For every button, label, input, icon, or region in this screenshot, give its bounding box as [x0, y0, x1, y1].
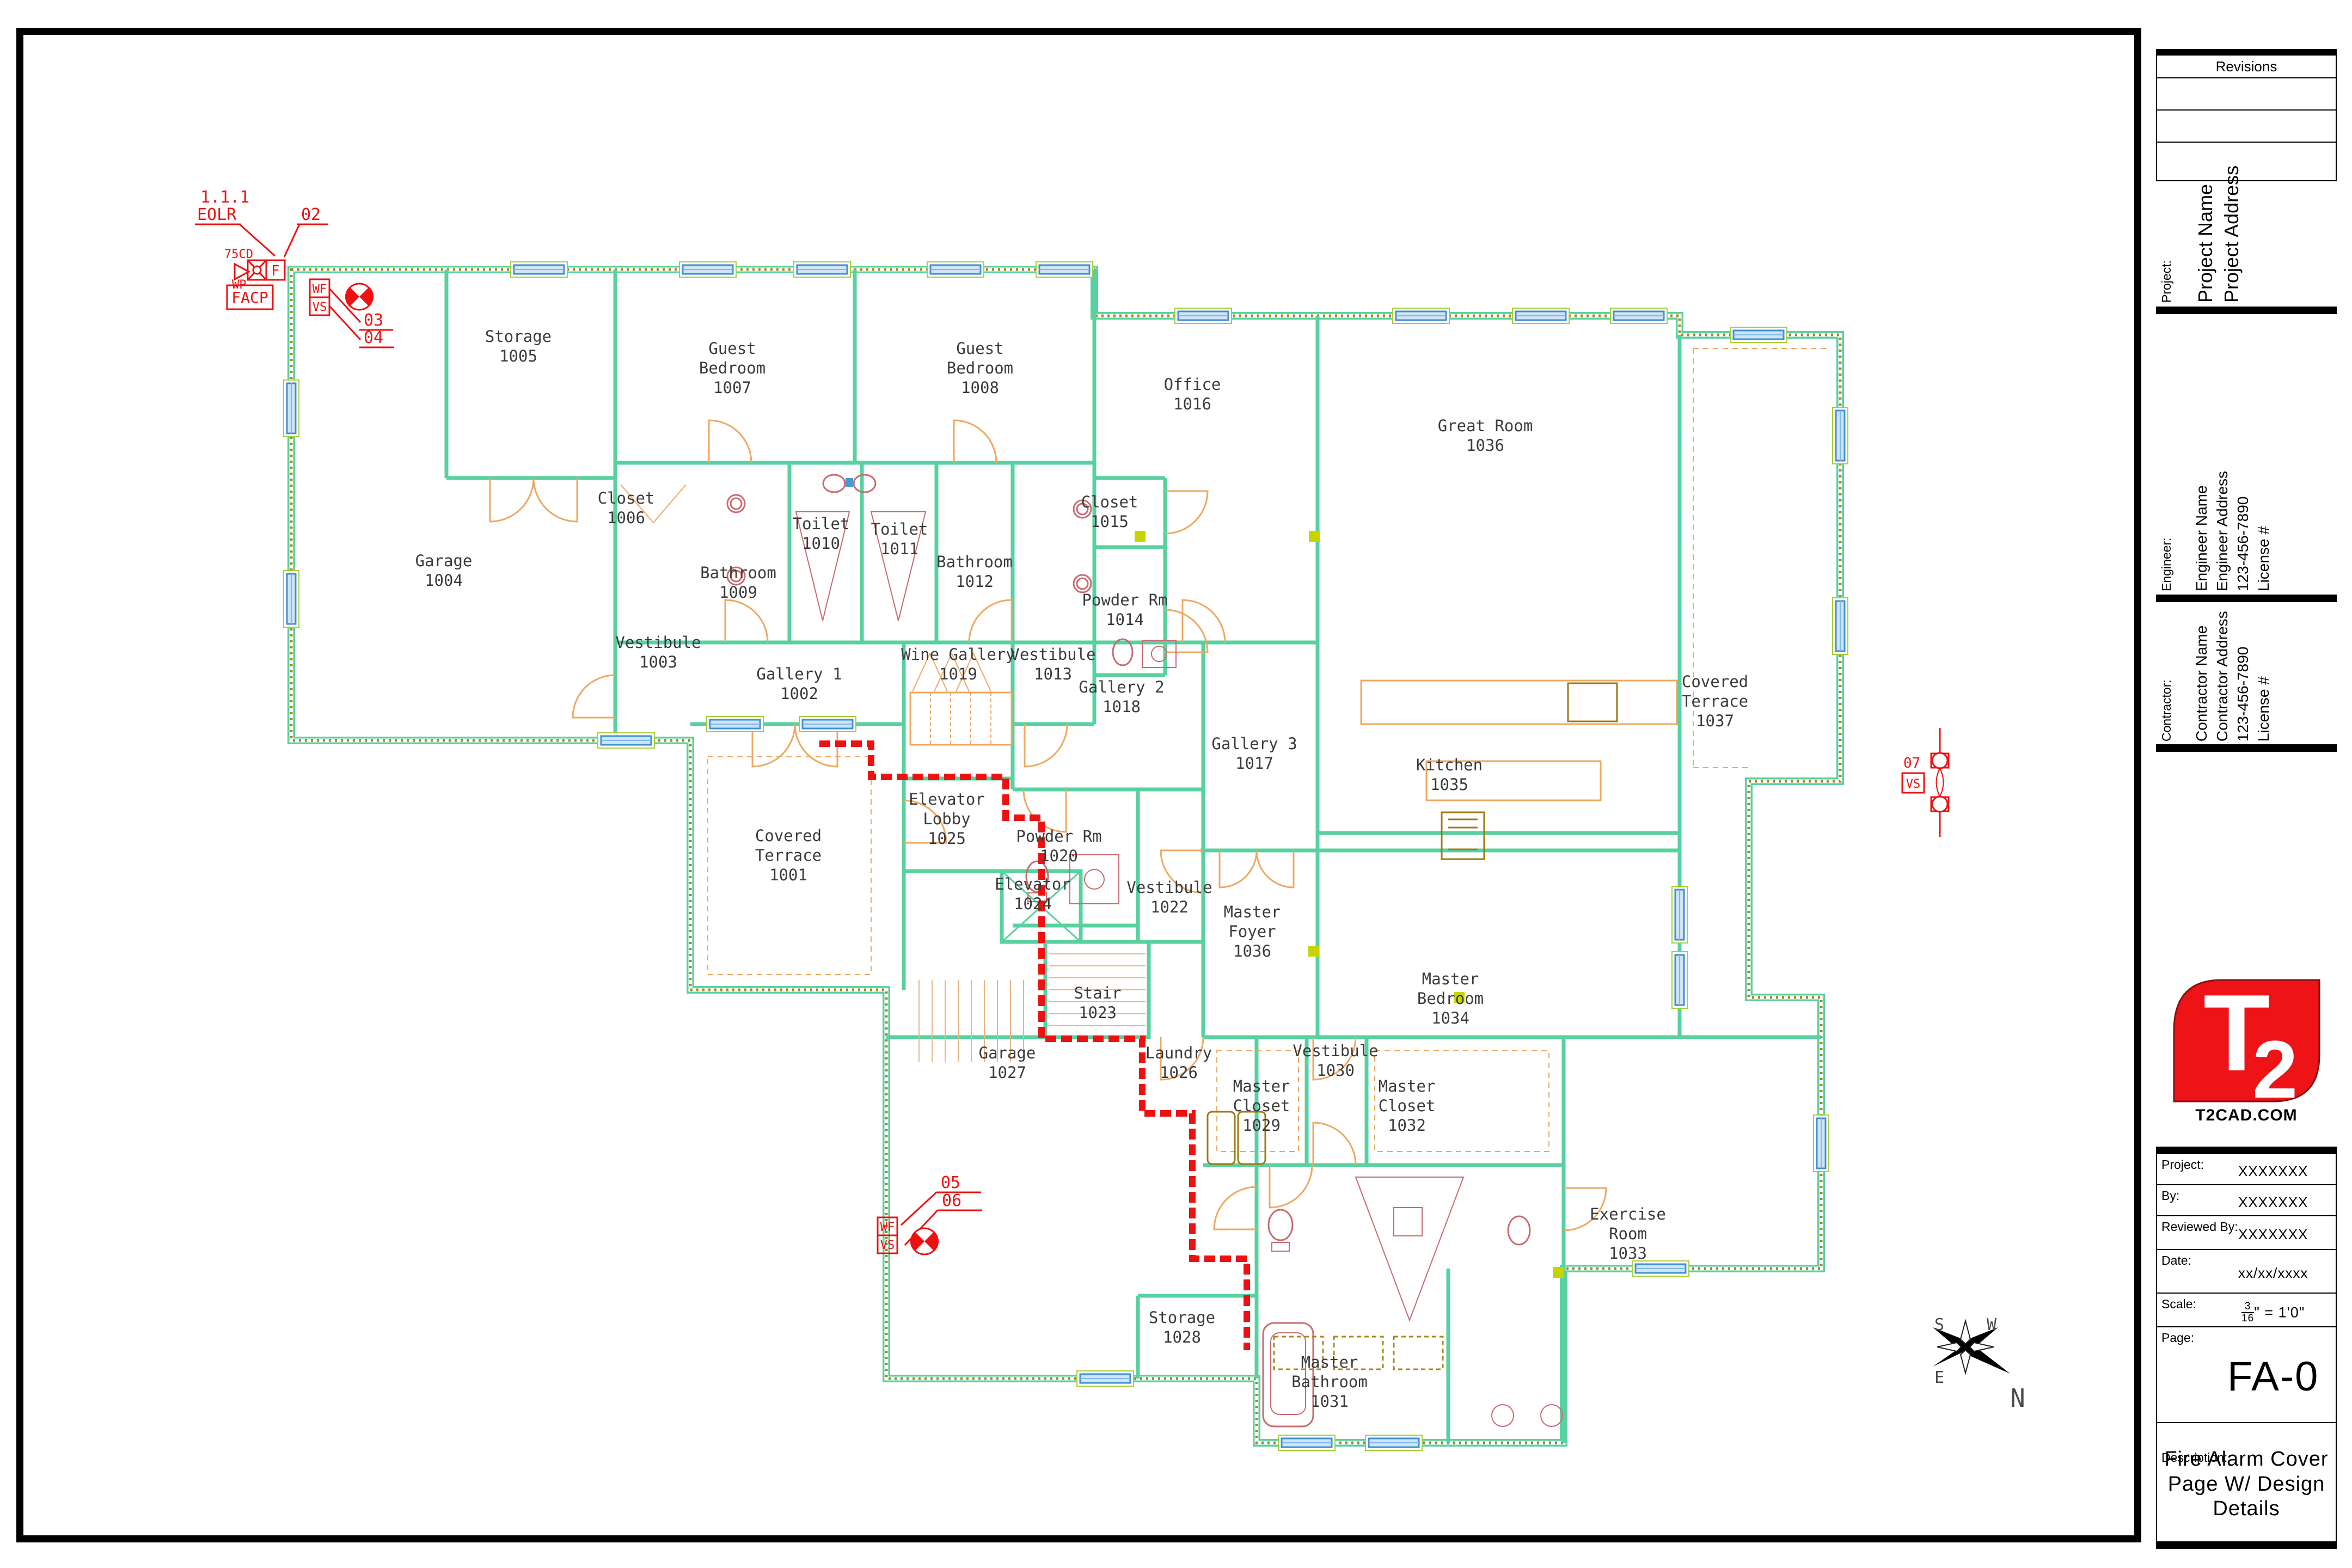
alarm-bell-icon	[910, 1228, 939, 1254]
room-labels: CoveredTerrace1001Gallery 11002Vestibule…	[415, 327, 1748, 1411]
info-value: XXXXXXX	[2210, 1194, 2336, 1211]
info-value: XXXXXXX	[2210, 1163, 2336, 1180]
info-value: xx/xx/xxxx	[2210, 1265, 2336, 1282]
window-icon	[799, 716, 856, 732]
room-label-1006: Closet1006	[598, 489, 655, 527]
pull-station-icon: F	[266, 260, 285, 280]
scale-value: 316" = 1'0"	[2210, 1301, 2336, 1324]
logo-digit-2: 2	[2252, 1024, 2298, 1105]
scale-denominator: 16	[2241, 1312, 2254, 1324]
info-row-page: Page: FA-0	[2157, 1327, 2336, 1423]
room-label-1003: Vestibule1003	[615, 633, 701, 671]
contractor-phone: 123-456-7890	[2234, 647, 2252, 742]
room-label-1029: MasterCloset1029	[1233, 1077, 1290, 1135]
room-label-1004: Garage1004	[415, 552, 473, 590]
info-label: Scale:	[2161, 1297, 2196, 1312]
window-icon	[598, 733, 654, 748]
callout-06: 06	[942, 1191, 961, 1210]
plumbing-chase	[846, 478, 853, 487]
room-label-1024: Elevator1024	[995, 875, 1071, 913]
window-icon	[1512, 308, 1569, 323]
garage-storage-bo	[1274, 1337, 1443, 1369]
info-label: Page:	[2161, 1331, 2194, 1345]
window-icon	[284, 571, 299, 627]
window-icon	[794, 262, 850, 277]
waterflow-switch-box: WF	[310, 279, 329, 297]
window-icon	[1632, 1261, 1689, 1276]
window-icon	[1365, 1435, 1422, 1450]
scale-numerator: 3	[2245, 1301, 2251, 1312]
info-row-date: Date: xx/xx/xxxx	[2157, 1250, 2336, 1294]
callout-05: 05	[941, 1173, 960, 1192]
room-label-1033: ExerciseRoom1033	[1590, 1205, 1666, 1263]
scale-suffix: " = 1'0"	[2254, 1304, 2305, 1321]
window-icon	[511, 262, 567, 277]
window-icon	[1036, 262, 1093, 277]
info-value: XXXXXXX	[2210, 1226, 2336, 1243]
callout-03: 03	[364, 311, 383, 330]
revision-row	[2157, 78, 2336, 111]
compass-n: N	[2010, 1383, 2025, 1413]
contractor-name: Contractor Name	[2193, 626, 2210, 742]
divider	[2156, 307, 2337, 314]
room-label-1012: Bathroom1012	[936, 553, 1013, 591]
project-name: Project Name	[2194, 184, 2217, 303]
room-label-1011: Toilet1011	[871, 520, 928, 558]
engineer-phone: 123-456-7890	[2234, 497, 2252, 591]
room-label-1001: CoveredTerrace1001	[755, 826, 822, 884]
svg-text:WF: WF	[313, 283, 327, 296]
project-address: Project Address	[2220, 166, 2243, 303]
window-icon	[1730, 327, 1787, 342]
contractor-address: Contractor Address	[2214, 611, 2231, 742]
room-label-1037: CoveredTerrace1037	[1682, 672, 1748, 730]
room-label-1034: MasterBedroom1034	[1417, 970, 1484, 1027]
divider	[2156, 744, 2337, 752]
svg-text:FACP: FACP	[231, 289, 268, 307]
svg-text:VS: VS	[313, 301, 327, 314]
circuit-id-label: 1.1.1	[200, 188, 249, 207]
room-label-1008: GuestBedroom1008	[947, 339, 1013, 397]
window-icon	[927, 262, 984, 277]
info-row-by: By: XXXXXXX	[2157, 1185, 2336, 1216]
garage-alarm-cluster: 05 06 WF VS	[878, 1173, 982, 1254]
window-icon	[1833, 407, 1848, 464]
eolr-label: EOLR	[197, 205, 237, 224]
info-row-scale: Scale: 316" = 1'0"	[2157, 1294, 2336, 1327]
callout-07: 07	[1903, 755, 1920, 771]
engineer-name: Engineer Name	[2193, 485, 2210, 591]
compass-rose: S W E N	[1933, 1315, 2025, 1413]
room-label-1023: Stair1023	[1074, 984, 1121, 1022]
room-label-1032: MasterCloset1032	[1379, 1077, 1436, 1135]
callout-02: 02	[301, 205, 321, 224]
info-row-reviewed-by: Reviewed By: XXXXXXX	[2157, 1216, 2336, 1250]
window-icon	[1175, 308, 1232, 323]
info-row-description: Description: Fire Alarm Cover Page W/ De…	[2157, 1447, 2336, 1541]
room-label-1007: GuestBedroom1007	[699, 339, 765, 397]
compass-e: E	[1934, 1368, 1944, 1387]
revision-row	[2157, 111, 2336, 143]
project-section-label: Project:	[2159, 260, 2174, 303]
callout-04: 04	[364, 328, 383, 347]
divider	[2156, 595, 2337, 602]
plumbing-fixtures	[727, 475, 1563, 1426]
revisions-table: Revisions	[2156, 49, 2337, 181]
room-label-1027: Garage1027	[979, 1044, 1036, 1082]
window-icon	[1077, 1371, 1134, 1386]
facp-panel: FACP	[227, 285, 273, 309]
info-label: By:	[2161, 1189, 2179, 1203]
room-label-1036: Great Room1036	[1438, 416, 1533, 455]
room-label-1020: Powder Rm1020	[1016, 827, 1101, 865]
riser-cluster: 07 VS	[1902, 728, 1949, 837]
revision-row	[2157, 143, 2336, 174]
info-table: Project: XXXXXXX By: XXXXXXX Reviewed By…	[2156, 1147, 2337, 1549]
window-icon	[1393, 308, 1449, 323]
t2-logo: T 2	[2170, 979, 2322, 1105]
info-label: Project:	[2161, 1157, 2204, 1172]
window-icon	[1814, 1115, 1829, 1172]
logo-website: T2CAD.COM	[2156, 1106, 2337, 1125]
room-label-1009: Bathroom1009	[700, 563, 776, 602]
compass-w: W	[1987, 1315, 1997, 1334]
candela-label: 75CD	[224, 248, 253, 261]
page-number: FA-0	[2210, 1353, 2336, 1400]
window-icon	[1833, 598, 1848, 654]
engineer-license: License #	[2255, 526, 2273, 591]
info-label: Description:	[2161, 1450, 2227, 1465]
room-label-1017: Gallery 31017	[1211, 734, 1297, 773]
valve-supervisory-box: VS	[310, 297, 329, 315]
contractor-license: License #	[2255, 676, 2273, 742]
room-label-1031: MasterBathroom1031	[1291, 1353, 1368, 1411]
window-icon	[1610, 308, 1667, 323]
valve-supervisory-box: VS	[1906, 777, 1921, 791]
info-row-project: Project: XXXXXXX	[2157, 1154, 2336, 1185]
contractor-section-label: Contractor:	[2159, 679, 2174, 742]
floor-plan: 1.1.1 EOLR 02 75CD WP F FACP	[0, 0, 2352, 1568]
revisions-header: Revisions	[2157, 56, 2336, 78]
room-label-1025: ElevatorLobby1025	[909, 790, 985, 848]
room-label-1028: Storage1028	[1149, 1308, 1215, 1346]
window-icon	[1672, 886, 1687, 943]
strobe-icon	[248, 260, 266, 280]
info-label: Date:	[2161, 1253, 2191, 1268]
compass-s: S	[1934, 1315, 1944, 1334]
room-label-1016: Office1016	[1164, 375, 1221, 413]
room-label-1036: MasterFoyer1036	[1224, 903, 1281, 960]
drawing-sheet: 1.1.1 EOLR 02 75CD WP F FACP	[0, 0, 2352, 1568]
window-icon	[1672, 952, 1687, 1008]
room-label-1002: Gallery 11002	[756, 665, 842, 703]
svg-text:WF: WF	[880, 1221, 895, 1234]
window-icon	[707, 716, 763, 732]
horn-icon	[235, 264, 249, 279]
window-icon	[679, 262, 736, 277]
svg-text:VS: VS	[880, 1239, 895, 1252]
room-label-1015: Closet1015	[1081, 493, 1138, 531]
window-icon	[1278, 1435, 1335, 1450]
window-icon	[284, 380, 299, 437]
engineer-address: Engineer Address	[2214, 471, 2231, 591]
engineer-section-label: Engineer:	[2159, 538, 2174, 591]
room-label-1005: Storage1005	[485, 327, 552, 365]
room-label-1026: Laundry1026	[1146, 1044, 1212, 1082]
alarm-bell-icon	[345, 284, 373, 310]
room-label-1018: Gallery 21018	[1079, 678, 1164, 716]
svg-text:F: F	[271, 263, 280, 279]
